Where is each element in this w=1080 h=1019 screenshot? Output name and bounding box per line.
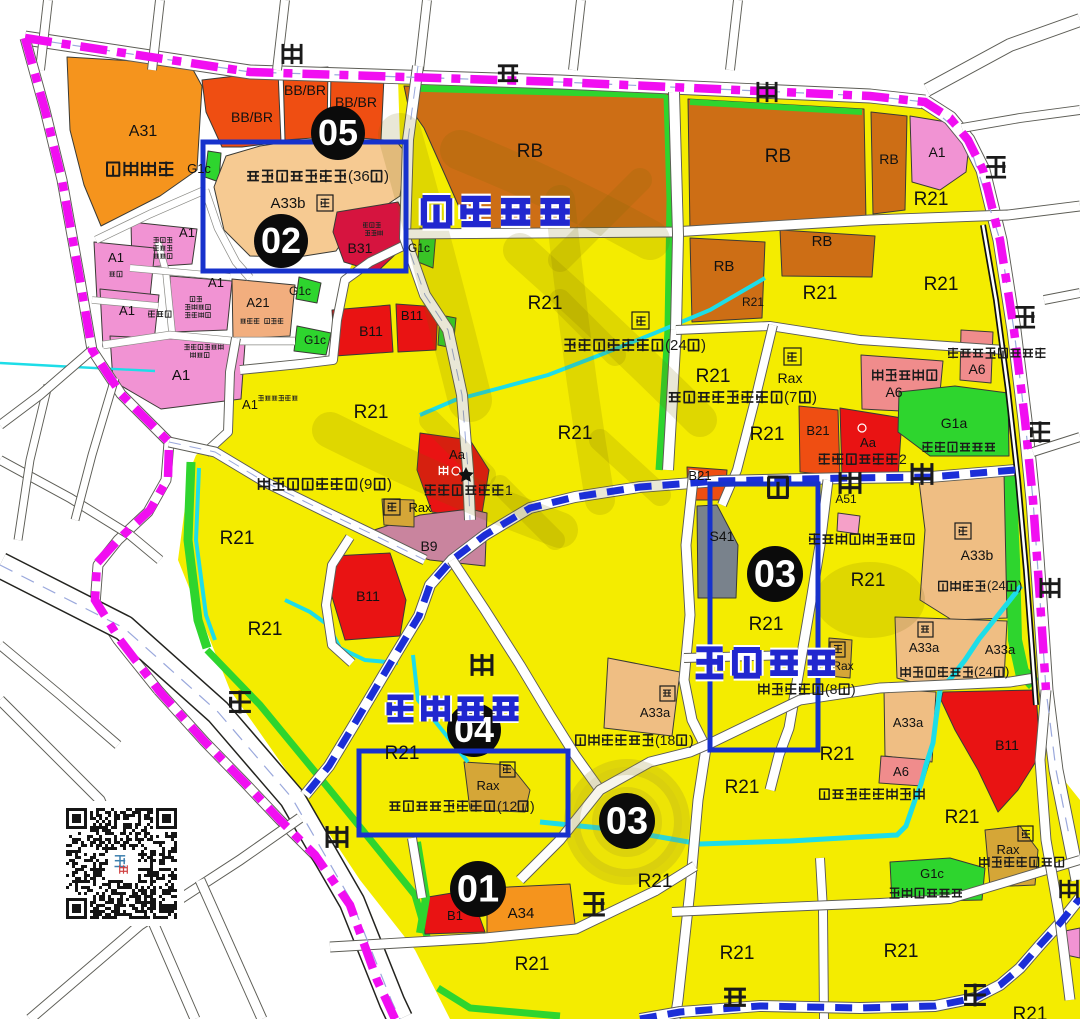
svg-text:R21: R21 xyxy=(924,274,959,295)
svg-text:): ) xyxy=(812,389,817,406)
svg-text:A1: A1 xyxy=(172,367,190,384)
svg-text:B21: B21 xyxy=(688,468,711,483)
svg-text:(24: (24 xyxy=(987,578,1006,593)
svg-text:2: 2 xyxy=(899,451,907,467)
svg-text:B21: B21 xyxy=(806,423,829,438)
svg-text:B11: B11 xyxy=(401,308,423,323)
svg-text:RB: RB xyxy=(765,146,791,167)
svg-text:G1c: G1c xyxy=(408,241,430,255)
svg-text:A1: A1 xyxy=(208,275,224,290)
svg-text:Rax: Rax xyxy=(778,370,803,386)
svg-text:R21: R21 xyxy=(725,777,760,798)
svg-text:A1: A1 xyxy=(108,250,124,265)
svg-text:): ) xyxy=(530,798,535,814)
svg-text:R21: R21 xyxy=(248,619,283,640)
svg-text:Rax: Rax xyxy=(832,659,853,673)
svg-text:A1: A1 xyxy=(119,303,135,318)
svg-text:G1c: G1c xyxy=(187,161,211,176)
svg-text:(24: (24 xyxy=(665,337,687,354)
svg-text:B31: B31 xyxy=(348,240,373,256)
svg-text:RB: RB xyxy=(517,141,543,162)
svg-text:B11: B11 xyxy=(995,737,1019,753)
svg-text:(36: (36 xyxy=(348,168,370,185)
svg-text:R21: R21 xyxy=(803,283,838,304)
svg-text:B9: B9 xyxy=(420,538,437,554)
svg-text:01: 01 xyxy=(457,869,499,911)
svg-text:BB/BR: BB/BR xyxy=(231,109,273,125)
svg-text:G1c: G1c xyxy=(289,284,311,298)
svg-text:B11: B11 xyxy=(359,323,383,339)
svg-text:S41: S41 xyxy=(710,528,735,544)
svg-text:): ) xyxy=(689,732,694,748)
svg-text:A33b: A33b xyxy=(270,195,305,212)
svg-text:R21: R21 xyxy=(750,424,785,445)
svg-text:A33a: A33a xyxy=(985,642,1016,657)
svg-text:A33a: A33a xyxy=(640,705,671,720)
svg-text:A21: A21 xyxy=(246,295,269,310)
svg-text:A33a: A33a xyxy=(893,715,924,730)
svg-text:A33a: A33a xyxy=(909,640,940,655)
svg-text:R21: R21 xyxy=(945,807,980,828)
svg-text:RB: RB xyxy=(879,151,898,167)
svg-text:R21: R21 xyxy=(720,943,755,964)
svg-text:(8: (8 xyxy=(825,681,838,697)
svg-text:R21: R21 xyxy=(696,366,731,387)
svg-text:A6: A6 xyxy=(893,764,909,779)
svg-text:(7: (7 xyxy=(784,389,797,406)
svg-text:03: 03 xyxy=(754,554,796,596)
svg-text:R21: R21 xyxy=(884,941,919,962)
svg-text:A34: A34 xyxy=(508,905,535,922)
svg-text:G1c: G1c xyxy=(920,866,944,881)
svg-text:03: 03 xyxy=(606,801,648,843)
svg-text:): ) xyxy=(1005,664,1009,679)
svg-text:(12: (12 xyxy=(497,798,517,814)
svg-text:RB: RB xyxy=(812,233,833,250)
svg-text:): ) xyxy=(1018,578,1022,593)
svg-text:B11: B11 xyxy=(356,588,380,604)
svg-text:(18: (18 xyxy=(655,732,675,748)
svg-text:R21: R21 xyxy=(558,423,593,444)
svg-text:A1: A1 xyxy=(179,225,195,240)
svg-text:A6: A6 xyxy=(968,361,985,377)
svg-text:Rax: Rax xyxy=(476,778,500,793)
svg-text:RB: RB xyxy=(714,258,735,275)
svg-text:A1: A1 xyxy=(928,144,945,160)
svg-text:R21: R21 xyxy=(354,402,389,423)
svg-text:A6: A6 xyxy=(885,384,902,400)
svg-text:(9: (9 xyxy=(359,476,372,493)
svg-text:R21: R21 xyxy=(1013,1004,1048,1019)
svg-text:R21: R21 xyxy=(220,528,255,549)
svg-text:): ) xyxy=(851,681,856,697)
svg-text:R21: R21 xyxy=(515,954,550,975)
svg-text:R21: R21 xyxy=(749,614,784,635)
svg-text:Aa: Aa xyxy=(860,435,877,450)
svg-text:G1a: G1a xyxy=(941,415,968,431)
svg-text:): ) xyxy=(701,337,706,354)
svg-text:A33b: A33b xyxy=(961,547,994,563)
svg-text:R21: R21 xyxy=(528,293,563,314)
svg-text:R21: R21 xyxy=(914,189,949,210)
svg-text:A31: A31 xyxy=(129,123,158,140)
svg-text:02: 02 xyxy=(261,220,301,261)
svg-text:BB/BR: BB/BR xyxy=(284,82,326,98)
svg-text:05: 05 xyxy=(318,112,358,153)
svg-text:A51: A51 xyxy=(835,492,857,506)
svg-text:): ) xyxy=(387,476,392,493)
svg-text:R21: R21 xyxy=(638,871,673,892)
svg-text:Aa: Aa xyxy=(449,447,466,462)
svg-text:R21: R21 xyxy=(851,570,886,591)
svg-text:1: 1 xyxy=(505,482,513,498)
svg-text:Rax: Rax xyxy=(996,842,1020,857)
svg-text:(24: (24 xyxy=(974,664,993,679)
svg-text:): ) xyxy=(384,168,389,185)
svg-text:Rax: Rax xyxy=(408,500,432,515)
svg-text:R21: R21 xyxy=(820,744,855,765)
svg-text:R21: R21 xyxy=(385,743,420,764)
svg-text:R21: R21 xyxy=(742,295,764,309)
svg-text:A1: A1 xyxy=(242,397,258,412)
svg-text:G1c: G1c xyxy=(304,333,326,347)
